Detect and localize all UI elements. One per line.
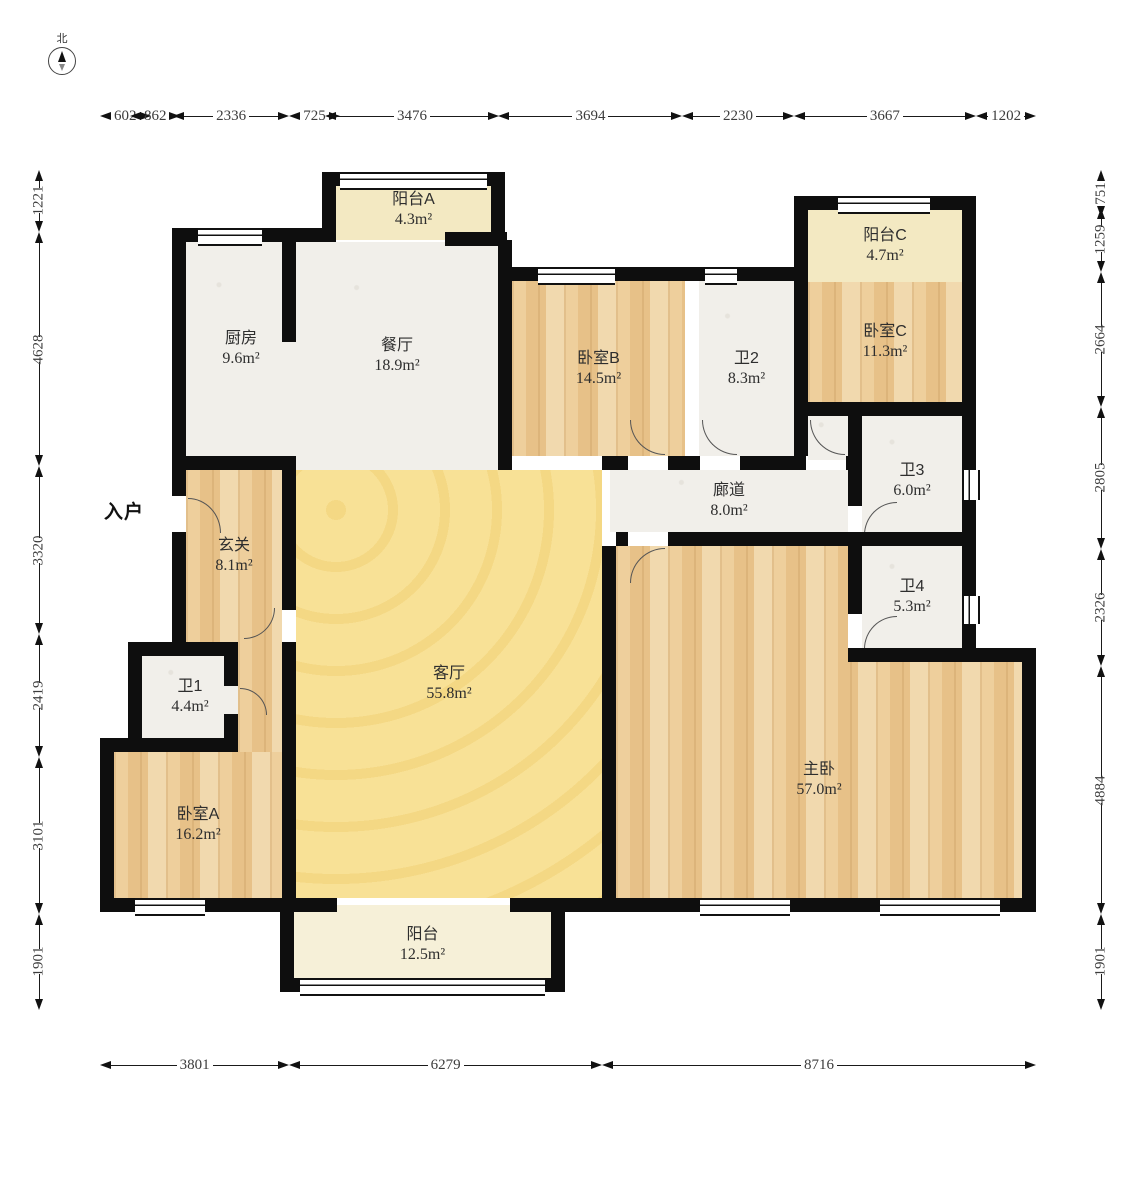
wall-segment [808, 402, 962, 416]
compass-needle-north [58, 51, 66, 62]
dimension-line [608, 116, 671, 117]
dimension-arrow-icon [325, 112, 336, 120]
room-balcony-c: 阳台C 4.7m² [808, 210, 962, 282]
room-name: 阳台 [406, 925, 438, 945]
room-area: 5.3m² [893, 597, 930, 617]
dimension-line [111, 1065, 177, 1066]
compass-icon [48, 47, 76, 75]
dimension-segment: 8716 [602, 1056, 1036, 1074]
dimension-arrow-icon [783, 112, 794, 120]
wall-segment [282, 470, 296, 610]
dimension-line [213, 1065, 279, 1066]
room-name: 阳台A [392, 190, 435, 210]
room-corridor: 廊道 8.0m² [610, 470, 848, 532]
dimension-value: 3667 [867, 108, 903, 125]
dimension-segment: 4628 [30, 232, 48, 466]
dimension-line [464, 1065, 591, 1066]
dimension-value: 2419 [27, 681, 52, 711]
dimension-arrow-icon [35, 170, 43, 181]
dimension-arrow-icon [1097, 914, 1105, 925]
dimension-segment: 2419 [30, 634, 48, 756]
wall-segment [545, 978, 565, 992]
dimension-line [837, 1065, 1025, 1066]
window [705, 267, 737, 285]
room-name: 玄关 [218, 536, 250, 556]
dimension-line [184, 116, 213, 117]
dimension-segment: 1202 [976, 107, 1036, 125]
dimension-line [39, 848, 40, 903]
dimension-segment: 3476 [325, 107, 498, 125]
room-area: 4.4m² [171, 697, 208, 717]
wall-segment [848, 546, 862, 614]
dimension-line [613, 1065, 801, 1066]
window [135, 898, 205, 916]
wall-segment [128, 642, 142, 752]
dimension-segment: 1901 [30, 914, 48, 1010]
window [880, 898, 1000, 916]
dimension-segment: 2230 [682, 107, 793, 125]
dimension-segment: 3801 [100, 1056, 289, 1074]
dimension-value: 3801 [177, 1057, 213, 1074]
dimension-arrow-icon [591, 1061, 602, 1069]
dimension-value: 1202 [988, 108, 1024, 125]
room-name: 客厅 [433, 664, 465, 684]
compass-north-label: 北 [44, 30, 80, 46]
dimension-value: 1221 [27, 186, 52, 216]
wall-segment [790, 898, 880, 912]
dimension-line [39, 563, 40, 624]
dimension-value: 3476 [394, 108, 430, 125]
wall-segment [100, 738, 238, 752]
dimension-ruler-left: 122146283320241931011901 [30, 170, 48, 1010]
dimension-line [1101, 418, 1102, 466]
dimension-ruler-top: 602862233672534763694223036671202 [100, 107, 1036, 125]
dimension-arrow-icon [35, 455, 43, 466]
wall-segment [600, 898, 700, 912]
room-living: 客厅 55.8m² [296, 470, 602, 898]
dimension-line [805, 116, 867, 117]
dimension-value: 4628 [27, 334, 52, 364]
dimension-arrow-icon [35, 914, 43, 925]
dimension-value: 1901 [27, 947, 52, 977]
dimension-arrow-icon [278, 1061, 289, 1069]
room-bedroom-c: 卧室C 11.3m² [808, 282, 962, 402]
dimension-value: 4884 [1089, 775, 1114, 805]
dimension-segment: 4884 [1092, 666, 1110, 913]
room-name: 厨房 [225, 329, 257, 349]
dimension-segment: 2664 [1092, 272, 1110, 407]
dimension-arrow-icon [1097, 272, 1105, 283]
wall-segment [794, 281, 808, 456]
dimension-line [1101, 560, 1102, 595]
dimension-arrow-icon [976, 112, 987, 120]
room-name: 卫1 [178, 677, 203, 697]
window [340, 172, 487, 190]
dimension-line [756, 116, 783, 117]
wall-segment [740, 456, 806, 470]
room-area: 8.1m² [215, 556, 252, 576]
room-name: 主卧 [803, 760, 835, 780]
dimension-value: 2664 [1089, 324, 1114, 354]
dimension-ruler-right: 751125926642805232648841901 [1092, 170, 1110, 1010]
dimension-value: 2805 [1089, 463, 1114, 493]
dimension-line [1101, 974, 1102, 999]
dimension-value: 3694 [572, 108, 608, 125]
dimension-arrow-icon [35, 746, 43, 757]
dimension-arrow-icon [35, 466, 43, 477]
dimension-arrow-icon [498, 112, 509, 120]
room-name: 卫2 [734, 349, 759, 369]
dimension-arrow-icon [278, 112, 289, 120]
window [962, 596, 980, 624]
dimension-line [509, 116, 572, 117]
room-name: 餐厅 [381, 336, 413, 356]
dimension-line [693, 116, 720, 117]
dimension-value: 1901 [1089, 947, 1114, 977]
dimension-value: 2326 [1089, 593, 1114, 623]
dimension-line [903, 116, 965, 117]
room-name: 廊道 [713, 481, 745, 501]
room-area: 16.2m² [175, 825, 220, 845]
room-area: 9.6m² [222, 349, 259, 369]
dimension-arrow-icon [1097, 666, 1105, 677]
wall-segment [848, 648, 976, 662]
room-name: 阳台C [863, 226, 907, 246]
dimension-line [1101, 283, 1102, 327]
entry-label: 入户 [104, 497, 144, 524]
dimension-segment: 725 [289, 107, 325, 125]
wall-segment [100, 898, 135, 912]
room-bedroom-a: 卧室A 16.2m² [114, 752, 282, 898]
room-area: 55.8m² [426, 684, 471, 704]
dimension-value: 751 [1089, 182, 1114, 205]
room-master: 主卧 57.0m² [616, 662, 1022, 898]
room-area: 6.0m² [893, 481, 930, 501]
dimension-arrow-icon [100, 1061, 111, 1069]
room-area: 14.5m² [576, 369, 621, 389]
dimension-segment: 1259 [1092, 208, 1110, 272]
dimension-arrow-icon [289, 112, 300, 120]
room-area: 57.0m² [796, 780, 841, 800]
dimension-value: 862 [141, 108, 170, 125]
dimension-line [39, 243, 40, 337]
wall-segment [668, 532, 862, 546]
dimension-arrow-icon [1025, 112, 1036, 120]
dimension-arrow-icon [1097, 655, 1105, 666]
dimension-segment: 2805 [1092, 407, 1110, 549]
dimension-line [1101, 620, 1102, 655]
room-name: 卫4 [900, 577, 925, 597]
compass: 北 [44, 30, 80, 75]
dimension-arrow-icon [35, 903, 43, 914]
dimension-line [1101, 490, 1102, 538]
window [538, 267, 615, 285]
dimension-line [39, 645, 40, 683]
dimension-segment: 3101 [30, 757, 48, 914]
dimension-arrow-icon [1097, 170, 1105, 181]
dimension-ruler-bottom: 380162798716 [100, 1056, 1036, 1074]
room-area: 11.3m² [863, 342, 908, 362]
room-dining: 餐厅 18.9m² [296, 242, 498, 470]
dimension-segment: 2336 [173, 107, 289, 125]
room-area: 8.3m² [728, 369, 765, 389]
room-area: 12.5m² [400, 945, 445, 965]
dimension-value: 3101 [27, 820, 52, 850]
dimension-segment: 3320 [30, 466, 48, 634]
dimension-value: 1259 [1089, 225, 1114, 255]
dimension-arrow-icon [35, 999, 43, 1010]
dimension-arrow-icon [1097, 396, 1105, 407]
dimension-value: 2336 [213, 108, 249, 125]
dimension-arrow-icon [1097, 903, 1105, 914]
wall-segment [1022, 648, 1036, 912]
dimension-arrow-icon [35, 757, 43, 768]
wall-segment [602, 546, 616, 898]
dimension-arrow-icon [1025, 1061, 1036, 1069]
dimension-arrow-icon [1097, 208, 1105, 219]
dimension-arrow-icon [1097, 549, 1105, 560]
dimension-line [1101, 803, 1102, 903]
room-area: 8.0m² [710, 501, 747, 521]
room-balcony-south: 阳台 12.5m² [294, 905, 551, 985]
wall-segment [280, 978, 300, 992]
dimension-value: 3320 [27, 535, 52, 565]
dimension-line [39, 708, 40, 746]
room-name: 卧室B [577, 349, 620, 369]
window [838, 196, 930, 214]
dimension-line [300, 1065, 427, 1066]
dimension-line [336, 116, 394, 117]
wall-segment [224, 656, 238, 686]
dimension-arrow-icon [100, 112, 111, 120]
wall-segment [282, 642, 296, 898]
dimension-value: 8716 [801, 1057, 837, 1074]
dimension-value: 6279 [428, 1057, 464, 1074]
dimension-line [39, 362, 40, 456]
dimension-arrow-icon [602, 1061, 613, 1069]
wall-segment [172, 532, 186, 642]
dimension-segment: 602 [100, 107, 130, 125]
dimension-arrow-icon [35, 623, 43, 634]
dimension-segment: 3694 [498, 107, 682, 125]
room-area: 4.7m² [866, 246, 903, 266]
dimension-arrow-icon [682, 112, 693, 120]
dimension-arrow-icon [35, 634, 43, 645]
dimension-line [1101, 352, 1102, 396]
room-name: 卧室A [177, 805, 220, 825]
window [300, 978, 545, 996]
dimension-segment: 862 [130, 107, 173, 125]
dimension-line [1101, 677, 1102, 777]
dimension-segment: 1221 [30, 170, 48, 232]
dimension-segment: 1901 [1092, 914, 1110, 1010]
room-kitchen: 厨房 9.6m² [186, 242, 296, 456]
dimension-arrow-icon [1097, 261, 1105, 272]
dimension-arrow-icon [488, 112, 499, 120]
wall-segment [205, 898, 292, 912]
dimension-arrow-icon [1097, 538, 1105, 549]
dimension-arrow-icon [173, 112, 184, 120]
room-name: 卧室C [863, 322, 907, 342]
dimension-line [39, 477, 40, 538]
dimension-arrow-icon [965, 112, 976, 120]
dimension-arrow-icon [1097, 407, 1105, 418]
dimension-line [39, 768, 40, 823]
compass-needle-south [59, 64, 65, 71]
wall-segment [668, 456, 700, 470]
wall-segment [224, 714, 238, 738]
window [700, 898, 790, 916]
wall-segment [282, 242, 296, 342]
wall-segment [794, 210, 808, 284]
dimension-segment: 6279 [289, 1056, 602, 1074]
dimension-line [39, 974, 40, 999]
dimension-line [249, 116, 278, 117]
dimension-line [430, 116, 488, 117]
window [962, 470, 980, 500]
window [198, 228, 262, 246]
dimension-arrow-icon [794, 112, 805, 120]
dimension-arrow-icon [35, 221, 43, 232]
room-name: 卫3 [900, 461, 925, 481]
dimension-arrow-icon [289, 1061, 300, 1069]
dimension-arrow-icon [35, 232, 43, 243]
dimension-segment: 2326 [1092, 549, 1110, 667]
wall-segment [848, 416, 862, 506]
dimension-arrow-icon [1097, 999, 1105, 1010]
wall-segment [848, 532, 962, 546]
dimension-segment: 751 [1092, 170, 1110, 208]
wall-segment [128, 642, 238, 656]
wall-segment [1000, 898, 1036, 912]
wall-segment [602, 456, 628, 470]
dimension-arrow-icon [671, 112, 682, 120]
room-area: 18.9m² [374, 356, 419, 376]
dimension-arrow-icon [130, 112, 141, 120]
dimension-segment: 3667 [794, 107, 977, 125]
wall-segment [616, 532, 628, 546]
room-area: 4.3m² [395, 210, 432, 230]
floor-plan: 北 602862233672534763694223036671202 3801… [0, 0, 1139, 1180]
wall-segment [100, 752, 114, 912]
wall-segment [172, 456, 296, 470]
dimension-value: 2230 [720, 108, 756, 125]
